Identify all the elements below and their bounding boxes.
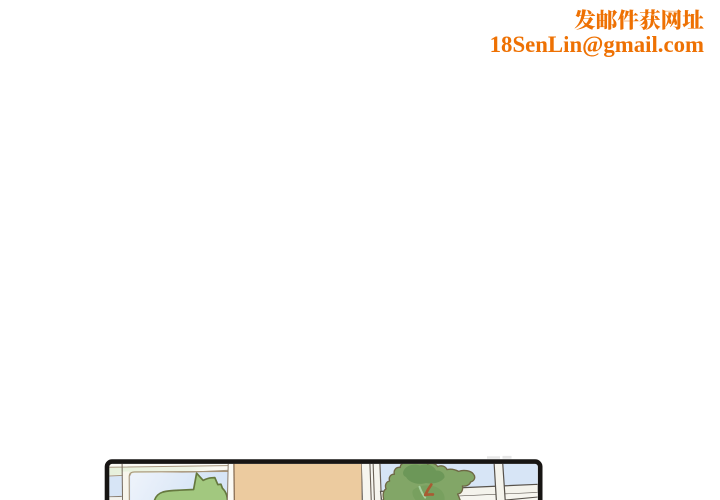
- svg-text:18SenLin@gmail.com: 18SenLin@gmail.com: [490, 32, 704, 58]
